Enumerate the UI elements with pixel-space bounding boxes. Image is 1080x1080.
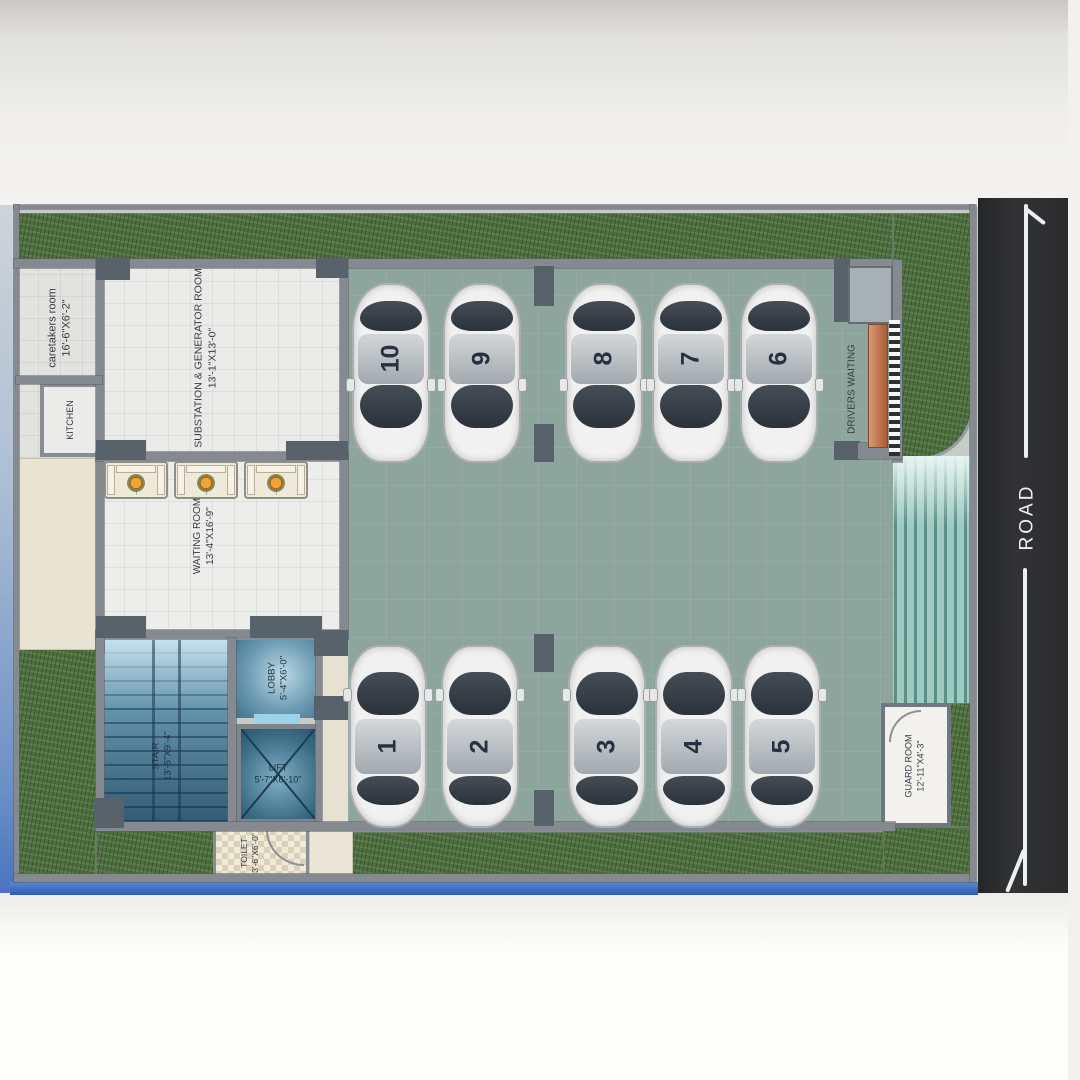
car-4: 4 xyxy=(655,645,733,828)
car-roof: 6 xyxy=(746,334,813,383)
car-number: 8 xyxy=(589,352,618,366)
car-roof: 9 xyxy=(449,334,516,383)
sofa xyxy=(244,461,308,499)
car-rear-glass xyxy=(357,776,419,805)
column-stub xyxy=(94,798,124,828)
car-windshield xyxy=(449,672,511,715)
column-stub xyxy=(534,424,554,462)
sofa-back xyxy=(186,465,226,473)
toilet-label: TOILET 3'-6"X6'-0" xyxy=(239,833,261,873)
sofa-back xyxy=(256,465,296,473)
car-number: 9 xyxy=(467,352,496,366)
car-2: 2 xyxy=(441,645,519,828)
car-mirror xyxy=(516,688,525,702)
column-stub xyxy=(534,790,554,826)
car-5: 5 xyxy=(743,645,821,828)
car-rear-glass xyxy=(360,301,422,331)
car-number: 6 xyxy=(764,352,793,366)
column-stub xyxy=(834,441,860,460)
car-mirror xyxy=(427,378,436,392)
column-stub xyxy=(96,258,130,280)
caretakers-room-label: caretakers room 16'-6"X6'-2" xyxy=(46,288,75,367)
room-name: caretakers room xyxy=(46,288,60,367)
grass-patch xyxy=(893,213,974,460)
car-rear-glass xyxy=(451,301,513,331)
car-number: 3 xyxy=(592,739,621,753)
car-number: 2 xyxy=(465,739,494,753)
car-mirror xyxy=(737,688,746,702)
room-name: LOBBY xyxy=(267,656,279,700)
sofa-back xyxy=(116,465,156,473)
plan-blue-border xyxy=(10,882,978,895)
room-dims: 13'-4"X16'-9" xyxy=(204,498,217,574)
room-dims: 12'-11"X4'-3" xyxy=(915,735,927,798)
room-dims: 5'-4"X6'-0" xyxy=(279,656,291,700)
car-1: 1 xyxy=(349,645,427,828)
car-number: 7 xyxy=(676,352,705,366)
kitchen-label: KITCHEN xyxy=(65,400,77,440)
car-rear-glass xyxy=(576,776,638,805)
flower-icon xyxy=(127,474,145,492)
car-windshield xyxy=(576,672,638,715)
sofa-arm xyxy=(107,465,115,495)
car-rear-glass xyxy=(660,301,722,331)
lobby-label: LOBBY 5'-4"X6'-0" xyxy=(267,656,292,700)
sofa xyxy=(174,461,238,499)
car-rear-glass xyxy=(573,301,635,331)
car-roof: 10 xyxy=(358,334,425,383)
road-label: ROAD xyxy=(1016,484,1041,551)
car-rear-glass xyxy=(748,301,810,331)
car-mirror xyxy=(649,688,658,702)
car-mirror xyxy=(435,688,444,702)
page-margin-right xyxy=(1068,0,1080,1080)
car-number: 4 xyxy=(679,739,708,753)
car-9: 9 xyxy=(443,283,521,463)
car-rear-glass xyxy=(663,776,725,805)
car-8: 8 xyxy=(565,283,643,463)
drivers-bench xyxy=(868,324,888,448)
room-name: SUBSTATION & GENERATOR ROOM xyxy=(192,268,206,448)
car-windshield xyxy=(751,672,813,715)
car-mirror xyxy=(346,378,355,392)
room-dims: 5'-7"X6'-10" xyxy=(255,774,302,786)
car-rear-glass xyxy=(751,776,813,805)
store-cabin xyxy=(848,266,893,324)
grass-patch xyxy=(18,213,893,262)
room-name: KITCHEN xyxy=(65,400,77,440)
substation-room-floor xyxy=(102,268,348,458)
car-mirror xyxy=(818,688,827,702)
corridor xyxy=(318,640,348,828)
car-windshield xyxy=(357,672,419,715)
grass-patch xyxy=(16,648,96,878)
car-mirror xyxy=(343,688,352,702)
car-number: 10 xyxy=(376,345,405,373)
car-roof: 7 xyxy=(658,334,725,383)
room-dims: 13'-5"X9'-4" xyxy=(163,731,175,780)
hatched-edge xyxy=(889,320,900,456)
sofa-arm xyxy=(177,465,185,495)
grass-patch xyxy=(352,832,893,878)
sofa-arm xyxy=(157,465,165,495)
column-stub xyxy=(96,440,146,460)
room-dims: 3'-6"X6'-0" xyxy=(250,833,261,873)
column-stub xyxy=(250,616,322,638)
column-stub xyxy=(286,441,348,460)
boundary-wall xyxy=(970,205,976,882)
wall-segment xyxy=(14,259,898,268)
car-mirror xyxy=(815,378,824,392)
car-number: 5 xyxy=(767,739,796,753)
waiting-room-label: WAITING ROOM 13'-4"X16'-9" xyxy=(191,498,217,574)
road-center-line xyxy=(1023,568,1027,886)
guard-room-label: GUARD ROOM 12'-11"X4'-3" xyxy=(903,735,926,798)
wall-segment xyxy=(16,376,102,384)
road-center-line xyxy=(1024,204,1028,458)
column-stub xyxy=(316,258,348,278)
floor-plan-photo: ROAD xyxy=(0,0,1080,1080)
sofa-arm xyxy=(227,465,235,495)
car-3: 3 xyxy=(568,645,646,828)
boundary-wall xyxy=(14,205,974,209)
car-roof: 1 xyxy=(355,719,422,774)
column-stub xyxy=(534,634,554,672)
car-mirror xyxy=(424,688,433,702)
car-mirror xyxy=(559,378,568,392)
car-mirror xyxy=(734,378,743,392)
car-roof: 8 xyxy=(571,334,638,383)
car-windshield xyxy=(663,672,725,715)
flower-icon xyxy=(267,474,285,492)
boundary-wall xyxy=(14,205,19,882)
column-stub xyxy=(534,266,554,306)
substation-label: SUBSTATION & GENERATOR ROOM 13'-1"X13'-0… xyxy=(192,268,219,448)
road-label-text: ROAD xyxy=(1016,484,1041,551)
page-edge-left xyxy=(0,205,14,893)
car-mirror xyxy=(562,688,571,702)
drivers-waiting-label: DRIVERS WAITING xyxy=(846,344,859,434)
car-mirror xyxy=(518,378,527,392)
sofa-arm xyxy=(247,465,255,495)
toilet-side-room xyxy=(309,828,353,878)
sofa xyxy=(104,461,168,499)
wall-segment xyxy=(228,638,236,828)
stair-label: STAIR 13'-5"X9'-4" xyxy=(151,731,176,780)
wall-segment xyxy=(316,638,322,828)
room-dims: 13'-1"X13'-0" xyxy=(206,268,220,448)
car-windshield xyxy=(748,385,810,427)
room-name: GUARD ROOM xyxy=(903,735,915,798)
car-10: 10 xyxy=(352,283,430,463)
car-rear-glass xyxy=(449,776,511,805)
room-name: WAITING ROOM xyxy=(191,498,204,574)
car-6: 6 xyxy=(740,283,818,463)
column-stub xyxy=(96,616,146,638)
car-mirror xyxy=(437,378,446,392)
car-roof: 5 xyxy=(749,719,816,774)
car-windshield xyxy=(451,385,513,427)
room-name: LIFT xyxy=(255,762,302,774)
car-7: 7 xyxy=(652,283,730,463)
car-roof: 3 xyxy=(574,719,641,774)
page-margin-bottom xyxy=(0,893,1080,1080)
room-dims: 16'-6"X6'-2" xyxy=(60,288,74,367)
boundary-wall xyxy=(14,874,974,882)
car-roof: 2 xyxy=(447,719,514,774)
stair-rail xyxy=(178,640,181,826)
car-mirror xyxy=(646,378,655,392)
room-name: TOILET xyxy=(239,833,250,873)
grass-patch xyxy=(96,830,216,878)
car-number: 1 xyxy=(373,739,402,753)
car-windshield xyxy=(360,385,422,427)
column-stub xyxy=(314,630,348,656)
lift-label: LIFT 5'-7"X6'-10" xyxy=(255,762,302,785)
page-margin-top xyxy=(0,0,1080,207)
grass-patch xyxy=(883,827,975,878)
car-windshield xyxy=(573,385,635,427)
room-name: STAIR xyxy=(151,731,163,780)
car-roof: 4 xyxy=(661,719,728,774)
sofa-arm xyxy=(297,465,305,495)
car-windshield xyxy=(660,385,722,427)
open-terrace-area xyxy=(16,458,98,650)
flower-icon xyxy=(197,474,215,492)
room-name: DRIVERS WAITING xyxy=(846,344,859,434)
